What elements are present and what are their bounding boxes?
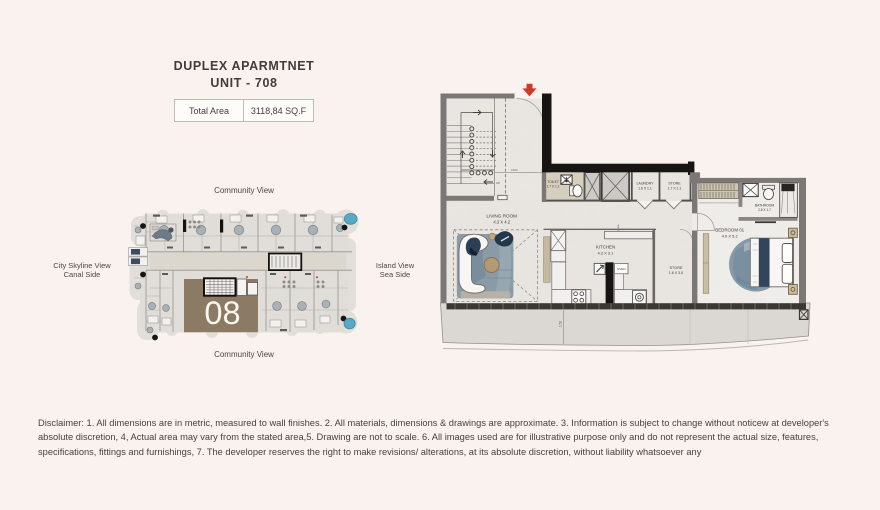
svg-text:TOILET: TOILET <box>547 180 559 184</box>
svg-text:2.8 X 1.7: 2.8 X 1.7 <box>758 208 771 212</box>
svg-text:LIVING ROOM: LIVING ROOM <box>486 214 517 219</box>
svg-text:STORE: STORE <box>668 182 681 186</box>
svg-text:OVEN: OVEN <box>617 267 626 271</box>
svg-text:KITCHEN: KITCHEN <box>596 245 615 250</box>
svg-text:4.2 X 3.1: 4.2 X 3.1 <box>597 251 614 256</box>
svg-text:BATHROOM: BATHROOM <box>755 204 775 208</box>
svg-text:1.7 X 1.1: 1.7 X 1.1 <box>547 185 560 189</box>
svg-text:1.7 X 1.1: 1.7 X 1.1 <box>668 186 682 190</box>
svg-text:LAUNDRY: LAUNDRY <box>636 182 654 186</box>
svg-text:STORE: STORE <box>669 266 682 270</box>
svg-text:BEDROOM 01: BEDROOM 01 <box>715 228 744 233</box>
svg-text:UP: UP <box>496 181 500 185</box>
svg-text:1.50: 1.50 <box>559 321 563 327</box>
svg-text:1.6 X 1.1: 1.6 X 1.1 <box>638 186 652 190</box>
svg-text:1.6 X 3.0: 1.6 X 3.0 <box>669 271 683 275</box>
svg-text:4.0 X 5.2: 4.0 X 5.2 <box>722 234 739 239</box>
svg-text:4.3 X 4.2: 4.3 X 4.2 <box>493 220 510 225</box>
svg-text:1500: 1500 <box>511 168 518 172</box>
svg-text:08: 08 <box>204 295 240 331</box>
